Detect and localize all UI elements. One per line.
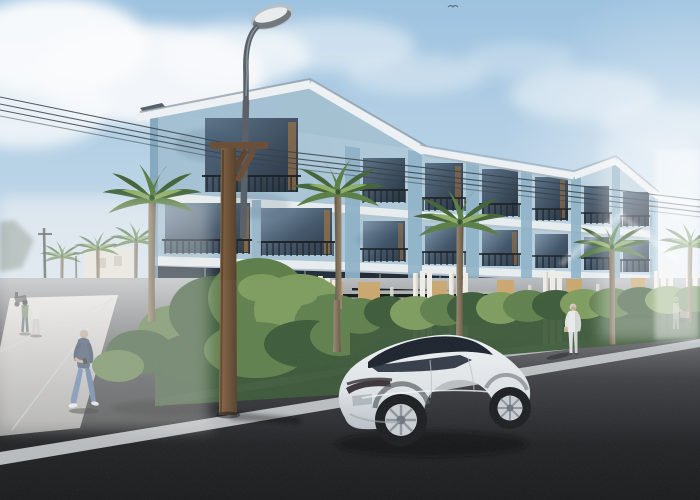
- pole-crossarm: [210, 142, 268, 149]
- render-canvas: Street-level architectural rendering: th…: [0, 0, 700, 500]
